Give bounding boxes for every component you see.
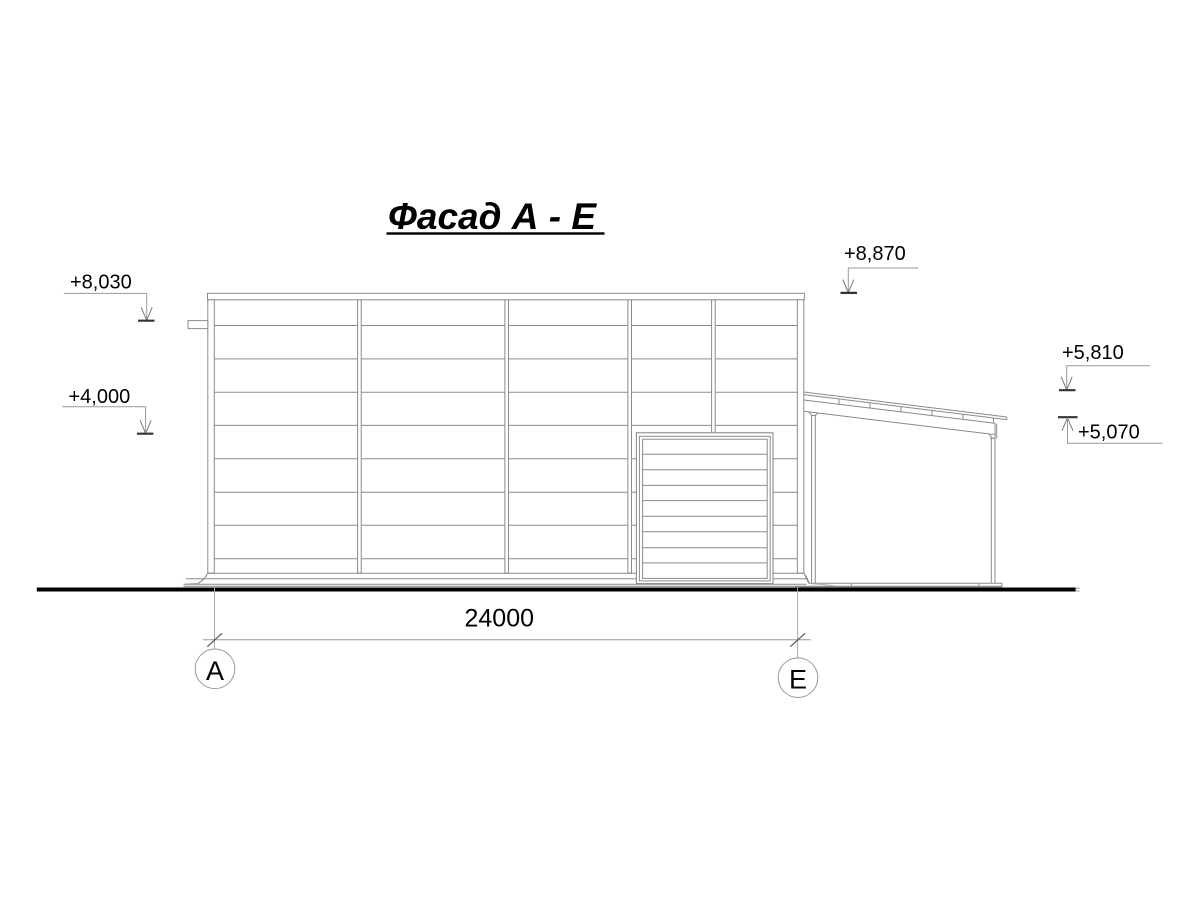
svg-text:24000: 24000 — [465, 605, 535, 633]
svg-text:Фасад А - Е: Фасад А - Е — [388, 196, 597, 237]
svg-text:+8,870: +8,870 — [844, 243, 906, 265]
svg-text:А: А — [206, 656, 224, 686]
svg-text:Е: Е — [789, 665, 807, 695]
svg-text:+8,030: +8,030 — [70, 272, 132, 294]
svg-text:+5,070: +5,070 — [1078, 422, 1140, 444]
svg-text:+4,000: +4,000 — [69, 386, 131, 408]
svg-text:+5,810: +5,810 — [1062, 342, 1124, 364]
